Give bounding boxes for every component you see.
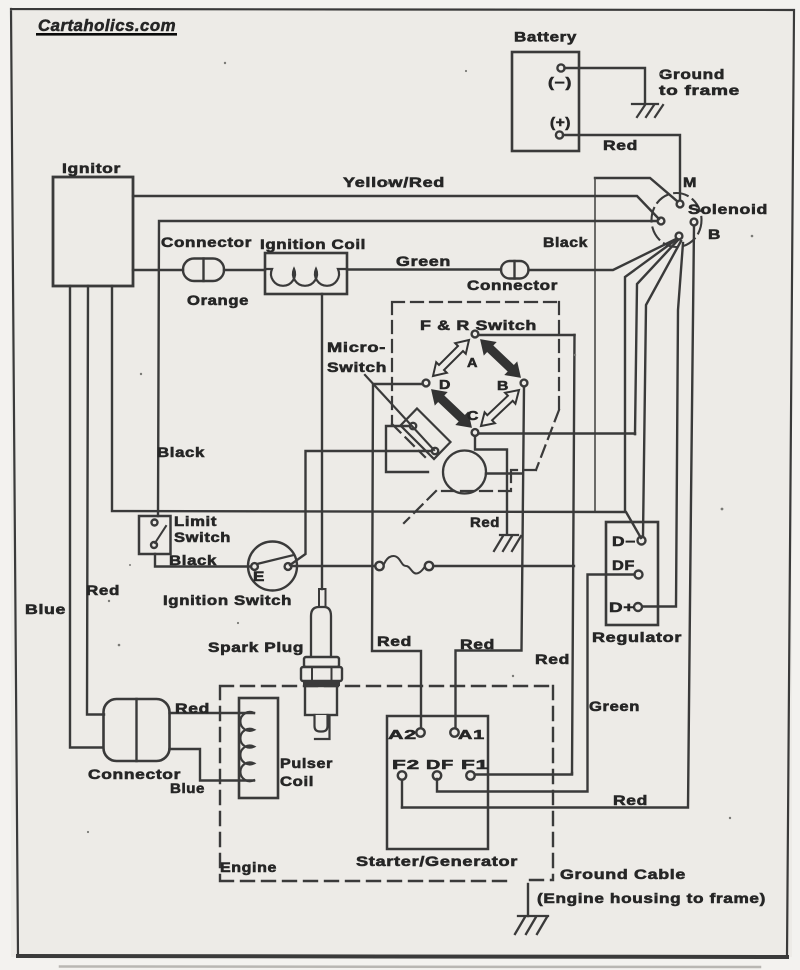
svg-text:Black: Black	[157, 445, 205, 460]
svg-text:Red: Red	[535, 652, 570, 667]
svg-text:A1: A1	[458, 727, 485, 742]
svg-text:DF: DF	[612, 558, 635, 573]
svg-text:D: D	[439, 377, 451, 392]
svg-text:Pulser: Pulser	[280, 756, 333, 771]
svg-text:C: C	[467, 408, 479, 423]
svg-text:D−: D−	[612, 534, 636, 549]
svg-text:Engine: Engine	[220, 860, 277, 875]
svg-text:Black: Black	[169, 553, 217, 568]
svg-text:Ground: Ground	[659, 67, 725, 82]
svg-text:Spark Plug: Spark Plug	[208, 640, 304, 655]
svg-text:Solenoid: Solenoid	[688, 202, 768, 217]
svg-text:Ignition Switch: Ignition Switch	[163, 593, 292, 608]
svg-text:M: M	[683, 175, 697, 190]
svg-text:Starter/Generator: Starter/Generator	[356, 854, 518, 869]
svg-text:A2: A2	[388, 727, 417, 742]
svg-text:Red: Red	[470, 515, 500, 530]
svg-text:B: B	[497, 378, 509, 393]
svg-text:Coil: Coil	[280, 774, 314, 789]
svg-text:D+: D+	[609, 600, 635, 615]
svg-text:Red: Red	[603, 138, 638, 153]
svg-text:Connector: Connector	[161, 235, 252, 250]
svg-text:F & R Switch: F & R Switch	[420, 318, 537, 333]
svg-text:Red: Red	[460, 637, 495, 652]
svg-text:Ground Cable: Ground Cable	[560, 867, 686, 882]
svg-text:Red: Red	[175, 701, 210, 716]
svg-text:F1: F1	[461, 757, 489, 772]
svg-text:DF: DF	[426, 757, 454, 772]
svg-text:Orange: Orange	[187, 293, 249, 308]
svg-text:Switch: Switch	[174, 530, 231, 545]
svg-text:Switch: Switch	[327, 360, 387, 375]
svg-text:(Engine housing to frame): (Engine housing to frame)	[537, 891, 766, 906]
svg-text:Battery: Battery	[514, 30, 577, 45]
svg-text:Black: Black	[543, 235, 588, 250]
svg-text:Cartaholics.com: Cartaholics.com	[38, 16, 176, 35]
svg-text:B: B	[708, 227, 721, 242]
svg-text:Red: Red	[377, 634, 412, 649]
svg-text:Ignitor: Ignitor	[62, 161, 121, 176]
svg-text:Blue: Blue	[170, 781, 205, 796]
svg-text:Red: Red	[86, 583, 120, 598]
svg-text:Connector: Connector	[88, 767, 181, 782]
svg-text:F2: F2	[392, 757, 420, 772]
svg-text:Green: Green	[589, 699, 640, 714]
svg-text:Red: Red	[613, 793, 648, 808]
svg-text:E: E	[253, 569, 265, 584]
svg-text:(−): (−)	[548, 75, 572, 90]
svg-text:A: A	[467, 355, 478, 370]
svg-text:Regulator: Regulator	[592, 630, 682, 645]
svg-text:Micro-: Micro-	[327, 340, 386, 355]
svg-text:Yellow/Red: Yellow/Red	[343, 175, 445, 190]
svg-text:Green: Green	[396, 254, 451, 269]
svg-text:Connector: Connector	[467, 278, 558, 293]
svg-text:to frame: to frame	[659, 83, 740, 98]
svg-text:Ignition Coil: Ignition Coil	[260, 237, 366, 252]
svg-text:Blue: Blue	[25, 602, 66, 617]
svg-text:Limit: Limit	[174, 514, 217, 529]
svg-text:(+): (+)	[550, 115, 571, 130]
